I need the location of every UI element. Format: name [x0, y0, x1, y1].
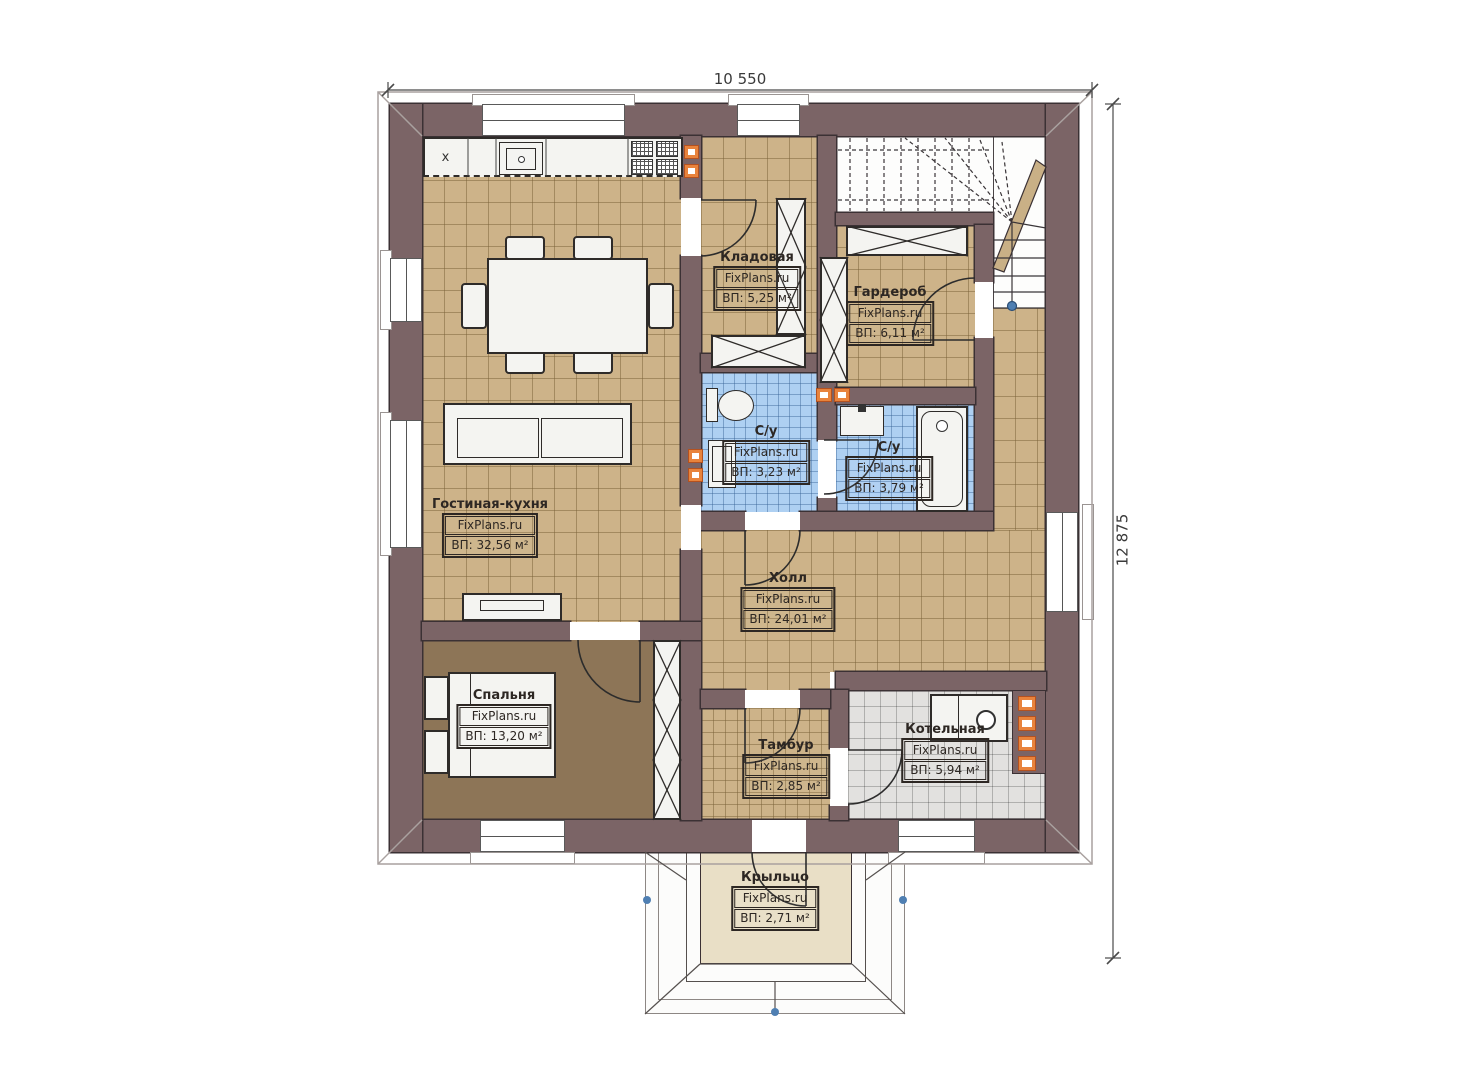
wall-hall-boiler	[836, 672, 1046, 690]
wall-exterior-right	[1046, 104, 1078, 852]
room-info-box: FixPlans.ru ВП: 3,79 м²	[845, 456, 933, 501]
sofa-cushion-left	[457, 418, 539, 458]
window-kitchen	[482, 104, 625, 136]
tv	[480, 600, 544, 611]
wall-garderob-hall-a	[975, 225, 993, 282]
door-opening-boiler	[830, 748, 848, 806]
closet-garderob-top	[846, 226, 968, 256]
room-info-box: FixPlans.ru ВП: 32,56 м²	[442, 513, 537, 558]
window-sill-right	[1082, 504, 1094, 620]
dimension-width-label: 10 550	[714, 70, 767, 88]
room-brand: FixPlans.ru	[743, 590, 832, 609]
room-name: Кладовая	[713, 250, 801, 265]
room-label-su-left: С/у FixPlans.ru ВП: 3,23 м²	[722, 424, 810, 485]
wall-spine-b	[681, 256, 701, 505]
panel-vent-icon-3	[1019, 737, 1035, 750]
room-label-boiler: Котельная FixPlans.ru ВП: 5,94 м²	[901, 722, 989, 783]
room-name: Крыльцо	[731, 870, 819, 885]
toilet-tank	[706, 388, 718, 422]
door-opening-su-left	[745, 512, 800, 530]
room-brand: FixPlans.ru	[904, 741, 986, 760]
bathtub-drain	[936, 420, 948, 432]
nightstand-2	[424, 730, 449, 774]
door-opening-su-right	[818, 440, 836, 498]
window-left-1	[390, 258, 422, 322]
window-sill-boiler	[888, 852, 985, 864]
wall-garderob-hall-b	[975, 338, 993, 512]
kitchen-sink-drain	[518, 156, 525, 163]
room-info-box: FixPlans.ru ВП: 2,71 м²	[731, 886, 819, 931]
wall-garderob-su	[836, 388, 975, 404]
floor-hall-corridor	[701, 672, 830, 690]
room-name: Тамбур	[742, 738, 830, 753]
wall-center-b	[818, 498, 836, 512]
room-name: С/у	[845, 440, 933, 455]
door-opening-tambur	[745, 690, 800, 708]
room-brand: FixPlans.ru	[459, 707, 548, 726]
vent-icon-su-left-2	[689, 469, 702, 481]
vent-icon-su-right-1	[817, 389, 831, 401]
wall-hall-tambur-b	[800, 690, 830, 708]
panel-vent-icon-4	[1019, 757, 1035, 770]
room-area: ВП: 2,85 м²	[745, 777, 827, 796]
vent-icon-kitchen-1	[685, 146, 698, 158]
kitchen-cabinet-mark: x	[423, 137, 468, 177]
room-label-kladovaya: Кладовая FixPlans.ru ВП: 5,25 м²	[713, 250, 801, 311]
dining-chair-1	[505, 236, 545, 260]
dining-chair-6	[648, 283, 674, 329]
wall-bedroom-a	[422, 622, 570, 640]
room-name: Спальня	[456, 688, 551, 703]
wall-tambur-boiler-b	[830, 806, 848, 820]
room-name: Котельная	[901, 722, 989, 737]
door-opening-entrance	[752, 820, 806, 852]
panel-vent-icon-2	[1019, 717, 1035, 730]
window-boiler	[898, 820, 975, 852]
window-sill-bedroom	[470, 852, 575, 864]
room-area: ВП: 3,23 м²	[725, 463, 807, 482]
room-area: ВП: 3,79 м²	[848, 479, 930, 498]
vent-icon-su-right-2	[835, 389, 849, 401]
dining-chair-5	[461, 283, 487, 329]
room-label-bedroom: Спальня FixPlans.ru ВП: 13,20 м²	[456, 688, 551, 749]
sink-su-right-tap	[858, 404, 866, 412]
nightstand-1	[424, 676, 449, 720]
room-brand: FixPlans.ru	[745, 757, 827, 776]
stove-burner-4	[656, 159, 678, 175]
wall-opening-living-hall	[681, 505, 701, 550]
room-brand: FixPlans.ru	[445, 516, 534, 535]
room-area: ВП: 6,11 м²	[849, 324, 931, 343]
room-name: Холл	[740, 571, 835, 586]
room-label-garderob: Гардероб FixPlans.ru ВП: 6,11 м²	[846, 285, 934, 346]
wall-bedroom-b	[640, 622, 701, 640]
window-bedroom	[480, 820, 565, 852]
room-brand: FixPlans.ru	[716, 269, 798, 288]
room-area: ВП: 2,71 м²	[734, 909, 816, 928]
stove-burner-2	[656, 141, 678, 157]
room-brand: FixPlans.ru	[848, 459, 930, 478]
vent-icon-kitchen-2	[685, 165, 698, 177]
room-area: ВП: 5,25 м²	[716, 289, 798, 308]
door-opening-bedroom	[570, 622, 640, 640]
room-info-box: FixPlans.ru ВП: 5,25 м²	[713, 266, 801, 311]
room-label-living-kitchen: Гостиная-кухня FixPlans.ru ВП: 32,56 м²	[432, 497, 548, 558]
room-name: Гардероб	[846, 285, 934, 300]
vent-icon-su-left-1	[689, 450, 702, 462]
window-right	[1046, 512, 1078, 612]
panel-vent-icon-1	[1019, 697, 1035, 710]
room-info-box: FixPlans.ru ВП: 6,11 м²	[846, 301, 934, 346]
dining-table	[487, 258, 648, 354]
sofa-cushion-right	[541, 418, 623, 458]
window-left-2	[390, 420, 422, 548]
room-info-box: FixPlans.ru ВП: 13,20 м²	[456, 704, 551, 749]
room-area: ВП: 5,94 м²	[904, 761, 986, 780]
room-area: ВП: 24,01 м²	[743, 610, 832, 629]
closet-bedroom	[653, 640, 681, 820]
stairs-area-winder	[993, 136, 1048, 310]
wall-su-hall-a	[701, 512, 745, 530]
room-brand: FixPlans.ru	[849, 304, 931, 323]
wall-stairs-garderob	[836, 213, 993, 225]
door-opening-garderob	[975, 282, 993, 338]
room-label-porch: Крыльцо FixPlans.ru ВП: 2,71 м²	[731, 870, 819, 931]
stove-burner-3	[631, 159, 653, 175]
room-area: ВП: 32,56 м²	[445, 536, 534, 555]
room-info-box: FixPlans.ru ВП: 24,01 м²	[740, 587, 835, 632]
room-name: Гостиная-кухня	[432, 497, 548, 512]
toilet-bowl	[718, 390, 754, 421]
floor-plan-canvas: x	[0, 0, 1473, 1080]
dining-chair-2	[573, 236, 613, 260]
room-area: ВП: 13,20 м²	[459, 727, 548, 746]
room-info-box: FixPlans.ru ВП: 5,94 м²	[901, 738, 989, 783]
room-brand: FixPlans.ru	[725, 443, 807, 462]
wall-spine-c	[681, 550, 701, 820]
room-brand: FixPlans.ru	[734, 889, 816, 908]
closet-kladovaya-low	[711, 335, 806, 368]
dimension-height-label: 12 875	[1113, 514, 1131, 567]
room-label-tambur: Тамбур FixPlans.ru ВП: 2,85 м²	[742, 738, 830, 799]
wall-hall-tambur-a	[701, 690, 745, 708]
door-opening-kitchen-corridor	[681, 198, 701, 256]
floor-stair-landing	[993, 308, 1046, 530]
stove-burner-1	[631, 141, 653, 157]
wall-tambur-boiler-a	[830, 690, 848, 748]
closet-garderob-side	[820, 257, 848, 383]
wall-su-hall-b	[800, 512, 993, 530]
room-name: С/у	[722, 424, 810, 439]
room-label-su-right: С/у FixPlans.ru ВП: 3,79 м²	[845, 440, 933, 501]
window-corridor	[737, 104, 800, 136]
room-info-box: FixPlans.ru ВП: 2,85 м²	[742, 754, 830, 799]
room-info-box: FixPlans.ru ВП: 3,23 м²	[722, 440, 810, 485]
room-label-hall: Холл FixPlans.ru ВП: 24,01 м²	[740, 571, 835, 632]
